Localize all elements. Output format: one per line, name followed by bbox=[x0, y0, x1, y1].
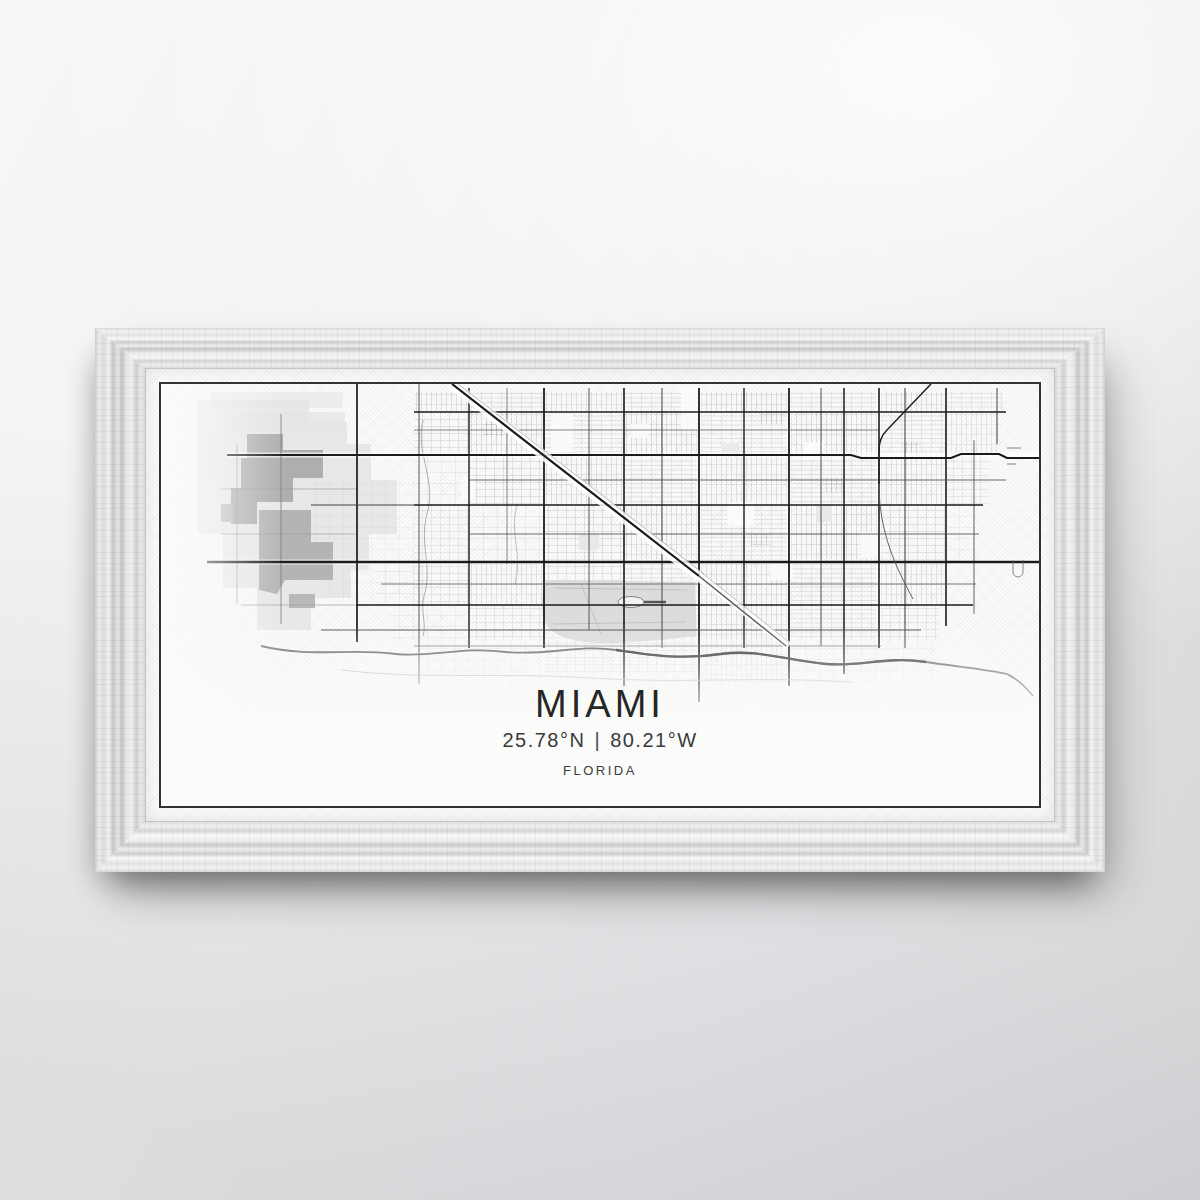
frame-molding-right bbox=[1055, 328, 1105, 872]
city-title: MIAMI bbox=[161, 683, 1039, 725]
frame-molding-bottom bbox=[95, 822, 1105, 872]
map-area: MIAMI 25.78°N|80.21°W FLORIDA bbox=[161, 384, 1039, 806]
title-block: MIAMI 25.78°N|80.21°W FLORIDA bbox=[161, 683, 1039, 779]
frame-molding-top bbox=[95, 328, 1105, 368]
frame-molding-left bbox=[95, 328, 145, 872]
coordinates-separator: | bbox=[594, 729, 601, 751]
longitude: 80.21°W bbox=[610, 729, 697, 751]
canvas-print: MIAMI 25.78°N|80.21°W FLORIDA bbox=[145, 368, 1055, 822]
latitude: 25.78°N bbox=[502, 729, 585, 751]
bay-details bbox=[1007, 448, 1023, 577]
picture-frame: MIAMI 25.78°N|80.21°W FLORIDA bbox=[95, 328, 1105, 872]
coordinates: 25.78°N|80.21°W bbox=[161, 728, 1039, 752]
wall: MIAMI 25.78°N|80.21°W FLORIDA bbox=[0, 0, 1200, 1200]
state-label: FLORIDA bbox=[161, 763, 1039, 779]
map-border: MIAMI 25.78°N|80.21°W FLORIDA bbox=[159, 382, 1041, 808]
